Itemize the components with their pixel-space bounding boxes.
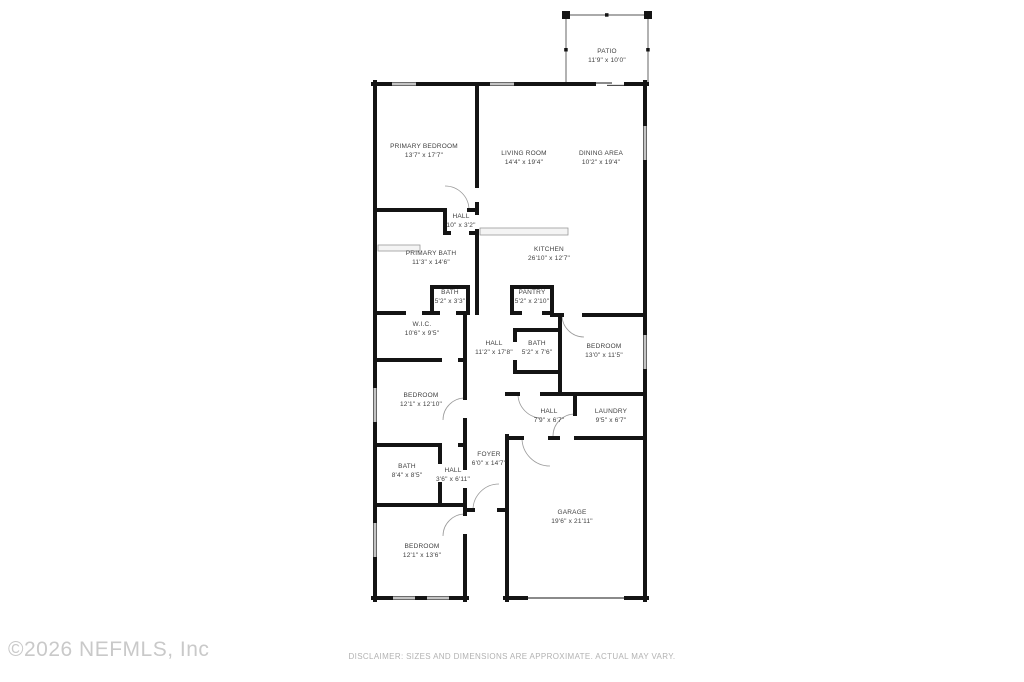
room-name: HALL [446, 213, 475, 222]
room-label-kitchen: KITCHEN 26'10" x 12'7" [528, 246, 570, 264]
room-dims: 10" x 3'2" [446, 222, 475, 231]
room-label-pantry: PANTRY 5'2" x 2'10" [515, 289, 549, 307]
room-label-bedroom-mid: BEDROOM 12'1" x 12'10" [400, 392, 442, 410]
room-dims: 13'0" x 11'5" [585, 352, 623, 361]
room-dims: 13'7" x 17'7" [390, 152, 458, 161]
room-name: HALL [436, 467, 470, 476]
room-dims: 26'10" x 12'7" [528, 255, 570, 264]
room-label-primary-bedroom: PRIMARY BEDROOM 13'7" x 17'7" [390, 143, 458, 161]
room-dims: 11'3" x 14'6" [406, 259, 456, 268]
room-name: PANTRY [515, 289, 549, 298]
room-name: PRIMARY BEDROOM [390, 143, 458, 152]
room-label-bath-hall: BATH 5'2" x 7'6" [522, 340, 553, 358]
room-name: LIVING ROOM [501, 150, 547, 159]
room-dims: 7'9" x 6'7" [534, 417, 565, 426]
disclaimer-text: DISCLAIMER: SIZES AND DIMENSIONS ARE APP… [0, 652, 1024, 661]
room-name: BATH [435, 289, 466, 298]
room-name: BEDROOM [585, 343, 623, 352]
room-dims: 14'4" x 19'4" [501, 159, 547, 168]
room-dims: 10'2" x 19'4" [579, 159, 623, 168]
room-label-bath-front: BATH 8'4" x 8'5" [392, 463, 423, 481]
room-label-dining-area: DINING AREA 10'2" x 19'4" [579, 150, 623, 168]
room-dims: 5'2" x 7'6" [522, 349, 553, 358]
room-name: HALL [534, 408, 565, 417]
room-name: PRIMARY BATH [406, 250, 456, 259]
room-label-foyer: FOYER 6'0" x 14'7" [472, 451, 506, 469]
room-name: HALL [475, 340, 513, 349]
room-dims: 11'9" x 10'0" [588, 57, 626, 66]
room-dims: 5'2" x 2'10" [515, 298, 549, 307]
room-name: PATIO [588, 48, 626, 57]
room-name: BATH [392, 463, 423, 472]
room-label-wic: W.I.C. 10'6" x 9'5" [405, 321, 439, 339]
room-label-hall-main: HALL 11'2" x 17'8" [475, 340, 513, 358]
room-label-bedroom-front: BEDROOM 12'1" x 13'6" [403, 543, 441, 561]
room-name: LAUNDRY [595, 408, 627, 417]
patio-posts [562, 11, 652, 52]
room-label-garage: GARAGE 19'6" x 21'11" [551, 509, 593, 527]
room-label-hall-garage: HALL 7'9" x 6'7" [534, 408, 565, 426]
room-dims: 9'5" x 6'7" [595, 417, 627, 426]
room-name: GARAGE [551, 509, 593, 518]
room-name: DINING AREA [579, 150, 623, 159]
room-name: KITCHEN [528, 246, 570, 255]
floorplan-page: PATIO 11'9" x 10'0" PRIMARY BEDROOM 13'7… [0, 0, 1024, 682]
room-dims: 6'0" x 14'7" [472, 460, 506, 469]
room-dims: 8'4" x 8'5" [392, 472, 423, 481]
room-label-hall-small: HALL 10" x 3'2" [446, 213, 475, 231]
room-dims: 5'2" x 3'3" [435, 298, 466, 307]
room-dims: 10'6" x 9'5" [405, 330, 439, 339]
room-label-living-room: LIVING ROOM 14'4" x 19'4" [501, 150, 547, 168]
room-label-primary-bath: PRIMARY BATH 11'3" x 14'6" [406, 250, 456, 268]
room-name: BEDROOM [400, 392, 442, 401]
room-dims: 3'6" x 6'11" [436, 476, 470, 485]
room-label-hall-front: HALL 3'6" x 6'11" [436, 467, 470, 485]
room-name: BEDROOM [403, 543, 441, 552]
room-dims: 19'6" x 21'11" [551, 518, 593, 527]
room-label-bedroom-right: BEDROOM 13'0" x 11'5" [585, 343, 623, 361]
room-name: BATH [522, 340, 553, 349]
room-dims: 11'2" x 17'8" [475, 349, 513, 358]
room-label-laundry: LAUNDRY 9'5" x 6'7" [595, 408, 627, 426]
room-label-bath-small: BATH 5'2" x 3'3" [435, 289, 466, 307]
room-name: W.I.C. [405, 321, 439, 330]
room-dims: 12'1" x 12'10" [400, 401, 442, 410]
room-name: FOYER [472, 451, 506, 460]
room-label-patio: PATIO 11'9" x 10'0" [588, 48, 626, 66]
room-dims: 12'1" x 13'6" [403, 552, 441, 561]
